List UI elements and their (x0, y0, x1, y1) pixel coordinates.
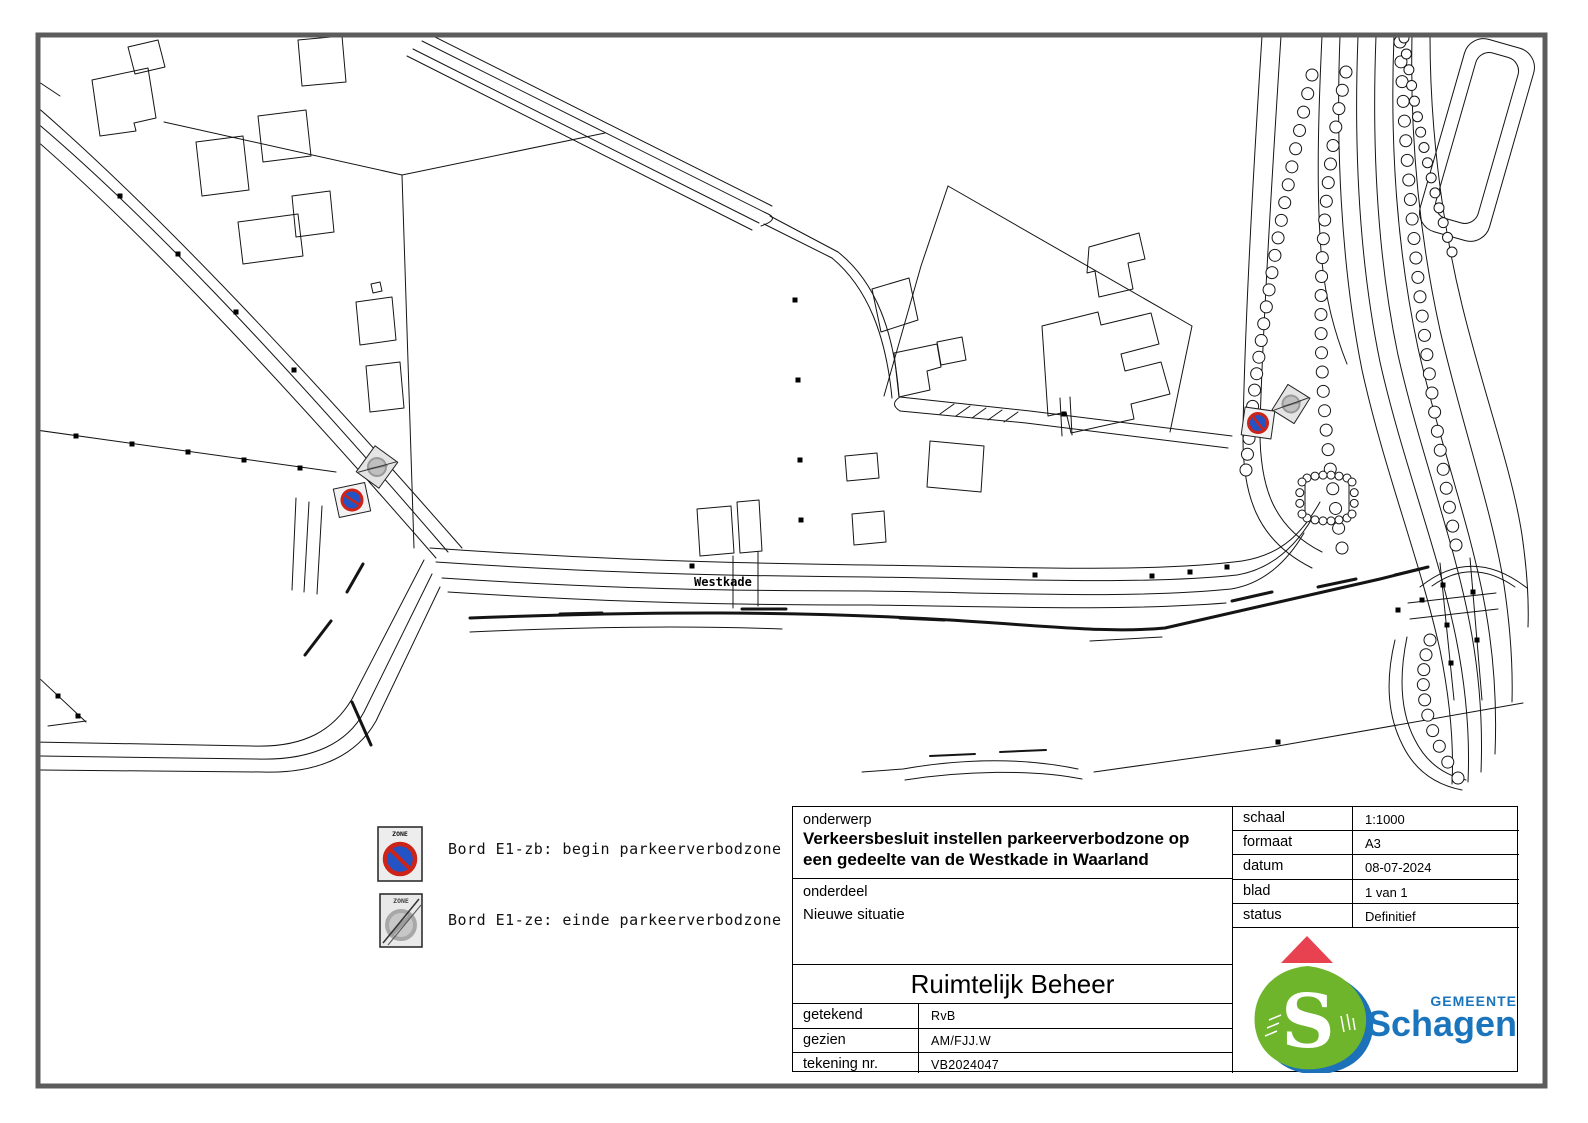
logo-cell: S GEMEENTE Schagen (1233, 928, 1519, 1073)
title-block: onderwerp Verkeersbesluit instellen park… (792, 806, 1518, 1072)
map-sign-begin-zone-east (1241, 407, 1275, 439)
status-value: Definitief (1353, 904, 1519, 928)
zone-text: ZONE (393, 897, 409, 905)
datum-label: datum (1233, 855, 1353, 880)
blad-label: blad (1233, 880, 1353, 904)
department-title: Ruimtelijk Beheer (793, 965, 1233, 1004)
onderwerp-value: Verkeersbesluit instellen parkeerverbodz… (803, 828, 1223, 870)
getekend-label: getekend (793, 1004, 919, 1029)
datum-value: 08-07-2024 (1353, 855, 1519, 880)
map-sign-begin-zone-west (333, 482, 370, 517)
legend-sign-einde-zone-icon: ZONE (379, 893, 423, 948)
formaat-value: A3 (1353, 831, 1519, 855)
zone-text: ZONE (392, 830, 408, 838)
survey-tick-marks (56, 194, 1480, 745)
legend-sign-begin-zone-icon: ZONE (377, 826, 423, 882)
map-sign-einde-zone-west (356, 446, 397, 488)
road-label-westkade: Westkade (694, 575, 752, 589)
onderdeel-value: Nieuwe situatie (803, 906, 1222, 923)
gezien-value: AM/FJJ.W (919, 1029, 1233, 1053)
map-sign-einde-zone-east (1272, 384, 1310, 423)
tekening-nr-label: tekening nr. (793, 1053, 919, 1073)
schaal-label: schaal (1233, 807, 1353, 831)
logo-roof-triangle (1281, 936, 1333, 963)
status-label: status (1233, 904, 1353, 928)
gemeente-schagen-logo: S GEMEENTE Schagen (1233, 928, 1519, 1073)
formaat-label: formaat (1233, 831, 1353, 855)
legend-label-einde-zone: Bord E1-ze: einde parkeerverbodzone (448, 911, 782, 929)
logo-s-letter: S (1281, 979, 1334, 1065)
gezien-label: gezien (793, 1029, 919, 1053)
onderdeel-cell: onderdeel Nieuwe situatie (793, 879, 1233, 965)
tekening-nr-value: VB2024047 (919, 1053, 1233, 1073)
getekend-value: RvB (919, 1004, 1233, 1029)
schaal-value: 1:1000 (1353, 807, 1519, 831)
onderdeel-label: onderdeel (803, 884, 1222, 900)
map-linework: Westkade (36, 33, 1539, 790)
onderwerp-cell: onderwerp Verkeersbesluit instellen park… (793, 807, 1233, 879)
blad-value: 1 van 1 (1353, 880, 1519, 904)
logo-schagen-text: Schagen (1367, 1003, 1517, 1044)
legend-label-begin-zone: Bord E1-zb: begin parkeerverbodzone (448, 840, 782, 858)
onderwerp-label: onderwerp (803, 812, 1222, 828)
